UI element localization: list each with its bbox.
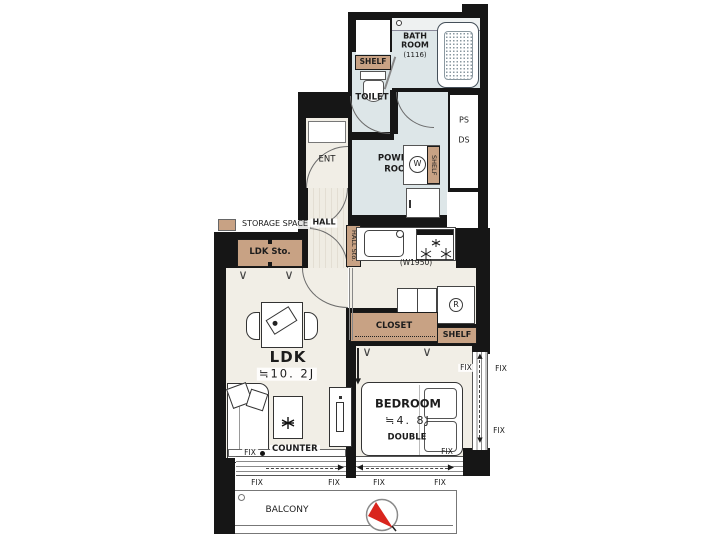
bedroom-label: BEDROOM [375,398,441,411]
legend-storage-swatch [218,219,236,231]
toilet-tank [360,71,386,80]
kitchen-width-label: (W1950) [400,259,432,267]
curtain-mark-icon: ∨ [284,269,294,283]
legend-storage-label: STORAGE SPACE [240,220,310,229]
powder-shelf: SHELF [427,146,440,184]
floor-plan: BATH ROOM (1116) SHELF TOILET POWDER ROO… [0,0,720,540]
closet-label: CLOSET [376,322,412,331]
tv-icon [336,402,344,432]
upper-closet [356,20,390,54]
closet: CLOSET [350,312,438,342]
wall-left [214,268,226,460]
counter-label: COUNTER [270,445,320,454]
kitchen-back-counter [397,288,437,314]
bed-type-label: DOUBLE [388,433,427,442]
refrigerator-label: R [453,301,459,310]
duct-space [447,192,478,228]
wall-corner-bottom-right [463,448,490,476]
curtain-mark-icon: ∨ [238,269,248,283]
plant-icon [281,416,295,430]
wall-balcony-left [214,458,235,534]
powder-shelf-label: SHELF [430,155,437,175]
curtain-mark-icon: ∨ [362,346,372,360]
fix-window-label: FIX [441,448,453,456]
bedroom-size-label: ≒4. 8J [385,415,430,427]
tray-dot [272,320,279,327]
balcony-drain-icon [238,494,245,501]
tv-knob [339,396,342,399]
refrigerator-icon: R [449,298,463,312]
closet-hanger-rail [355,336,435,337]
hall-label: HALL [310,219,337,228]
washer-label: W [414,160,422,169]
table-tray [266,306,298,335]
fix-window-label: FIX [434,479,446,487]
chair-right [304,312,318,340]
fix-window-label: FIX [458,364,474,372]
dining-table [261,302,303,348]
ds-label: DS [458,137,469,146]
toilet-shelf-label: SHELF [360,58,387,66]
bath-faucet-icon [396,20,402,26]
powder-kitchen-door [406,188,440,218]
chair-left [246,312,260,340]
wall-top-step [462,4,488,14]
entrance-label: ENT [319,155,336,164]
tv-board [329,387,352,447]
window-slide-arrow [366,468,448,469]
fix-window-label: FIX [493,427,505,435]
balcony-label: BALCONY [266,506,309,516]
balcony-inner-line [221,525,453,526]
compass-icon [365,498,399,532]
ldk-window [236,456,346,476]
storage-divider-bottom [268,262,272,267]
bedroom-shelf-label: SHELF [443,331,471,340]
bathroom-label-2: ROOM [401,42,429,51]
ldk-size-label: ≒10. 2J [257,368,317,381]
fix-window-label: FIX [328,479,340,487]
bedroom-entry-arrow-line [357,348,359,380]
door-handle [409,200,411,208]
stove [416,229,454,260]
wall-window-separator [346,454,356,478]
toilet-shelf: SHELF [355,55,391,70]
fix-window-label: FIX [495,365,507,373]
ps-label: PS [459,117,469,126]
ldk-storage-label: LDK Sto. [249,248,290,257]
sink-faucet-icon [396,230,404,238]
bathtub [437,22,479,88]
fix-window-label: FIX [251,479,263,487]
washer-icon: W [409,156,426,173]
window-slide-arrow [266,468,338,469]
sliding-partition [349,268,353,340]
fix-window-label: FIX [373,479,385,487]
storage-divider-top [268,239,272,244]
wall-kitchen-right [456,224,476,268]
side-window-slide-arrow [479,360,480,438]
counter-divider [417,289,418,313]
bathtub-inner [444,31,473,80]
balcony [218,490,457,534]
bathroom-size-label: (1116) [403,52,426,60]
ldk-label: LDK [270,349,307,366]
curtain-mark-icon: ∨ [422,346,432,360]
bedroom-shelf: SHELF [437,327,477,344]
shoe-cabinet [308,121,346,143]
